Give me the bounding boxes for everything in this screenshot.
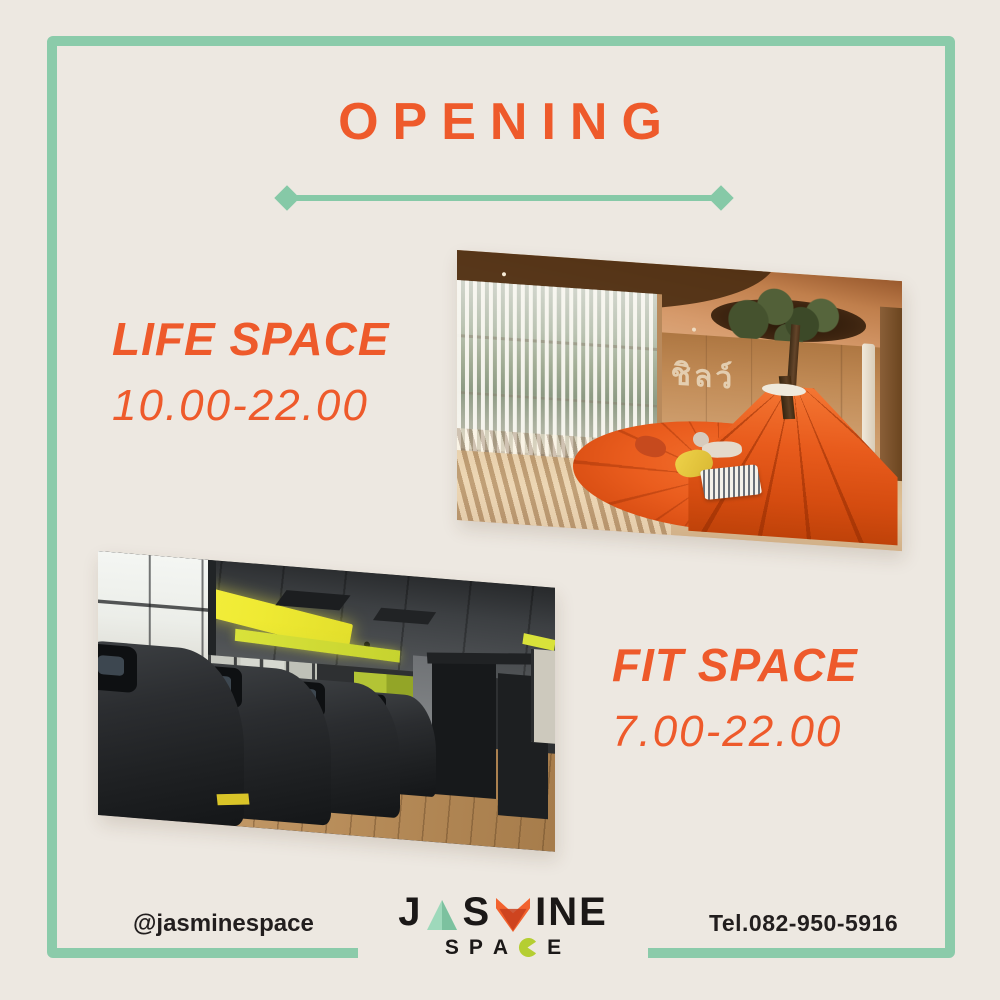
divider-line — [286, 195, 722, 201]
fit-space-label: FIT SPACE 7.00-22.00 — [612, 642, 858, 754]
yellow-label-sticker — [216, 794, 249, 805]
wall-sign-text: ชิลว์ — [671, 351, 736, 403]
logo-letter-p: P — [469, 937, 483, 958]
social-handle: @jasminespace — [133, 910, 314, 938]
fit-space-hours: 7.00-22.00 — [612, 710, 858, 754]
life-space-label: LIFE SPACE 10.00-22.00 — [112, 316, 390, 428]
logo-word-jasmine: J S INE — [398, 888, 608, 932]
wall-column — [862, 343, 875, 455]
phone-number: Tel.082-950-5916 — [709, 910, 898, 937]
logo-letter-j: J — [398, 892, 422, 932]
logo-letter-s2: S — [445, 937, 459, 958]
logo-c-mark-icon — [518, 938, 537, 957]
right-window-sliver — [531, 649, 555, 743]
logo-letters-ine: INE — [535, 892, 608, 932]
life-space-photo: ชิลว์ — [457, 250, 902, 551]
logo-a-triangle-icon — [427, 898, 457, 932]
weight-machine — [432, 657, 496, 799]
fit-space-title: FIT SPACE — [612, 642, 858, 688]
machine-crossbar — [427, 653, 542, 665]
logo-m-mark-icon — [496, 898, 530, 932]
poster: OPENING LIFE SPACE 10.00-22.00 ชิลว์ — [0, 0, 1000, 1000]
logo-letter-e: E — [547, 937, 561, 958]
fit-space-photo — [98, 551, 555, 852]
ceiling-lights — [502, 272, 506, 276]
life-space-title: LIFE SPACE — [112, 316, 390, 362]
life-space-hours: 10.00-22.00 — [112, 384, 390, 428]
logo-letter-s: S — [462, 892, 491, 932]
jasmine-space-logo: J S INE S P A E — [358, 888, 648, 980]
logo-letter-a2: A — [493, 937, 508, 958]
logo-word-space: S P A E — [445, 937, 561, 958]
page-title: OPENING — [0, 92, 1000, 152]
